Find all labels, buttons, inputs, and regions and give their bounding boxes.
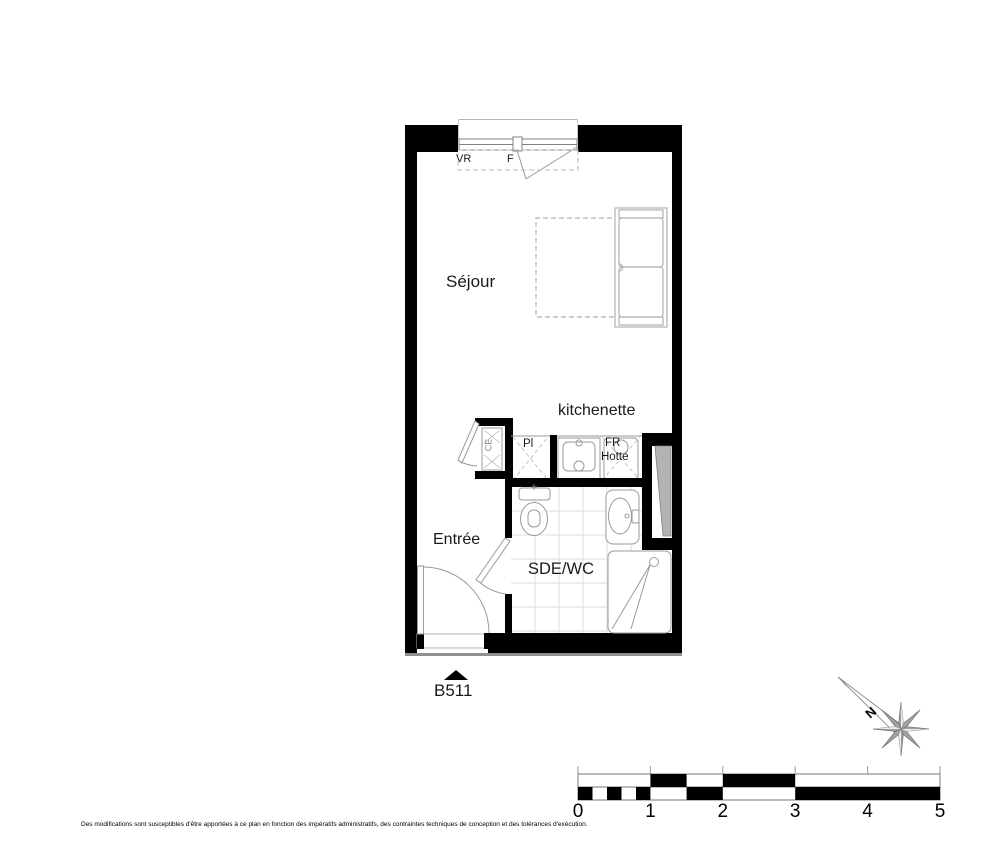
annotation-roller-shutter: VR [456,153,471,165]
annotation-cupboard: Pl [523,438,533,450]
annotation-water-heater: CE [483,439,493,452]
room-label-sde-wc: SDE/WC [528,560,594,579]
floor-plan-canvas: Séjour kitchenette Entrée SDE/WC VR F Pl… [0,0,1000,857]
bed-unfolded-outline [536,218,620,317]
toilet [519,484,550,536]
scale-tick-1: 1 [645,801,656,823]
bathroom-door [476,538,510,594]
annotation-window: F [507,153,514,165]
shower [608,551,671,633]
disclaimer-text: Des modifications sont susceptibles d'êt… [81,821,588,828]
annotation-hood: Hotte [601,451,629,463]
washbasin [606,490,639,544]
entrance-arrow-icon [444,670,468,680]
scale-tick-2: 2 [718,801,729,823]
annotation-fridge: FR [605,437,620,449]
floor-plan-drawing [0,0,1000,857]
sofa-bed [536,208,667,327]
scale-tick-3: 3 [790,801,801,823]
scale-bar [578,766,940,800]
kitchen-sink [558,438,600,480]
room-label-kitchenette: kitchenette [558,402,635,420]
scale-tick-5: 5 [935,801,946,823]
room-label-sejour: Séjour [446,272,495,292]
scale-tick-0: 0 [573,801,584,823]
scale-tick-4: 4 [862,801,873,823]
counter-partition-wall [550,435,557,478]
window-french [458,137,578,179]
compass-rose [838,677,929,756]
closet-door [458,421,479,466]
room-label-entree: Entrée [433,531,480,549]
unit-number-label: B511 [434,681,472,701]
